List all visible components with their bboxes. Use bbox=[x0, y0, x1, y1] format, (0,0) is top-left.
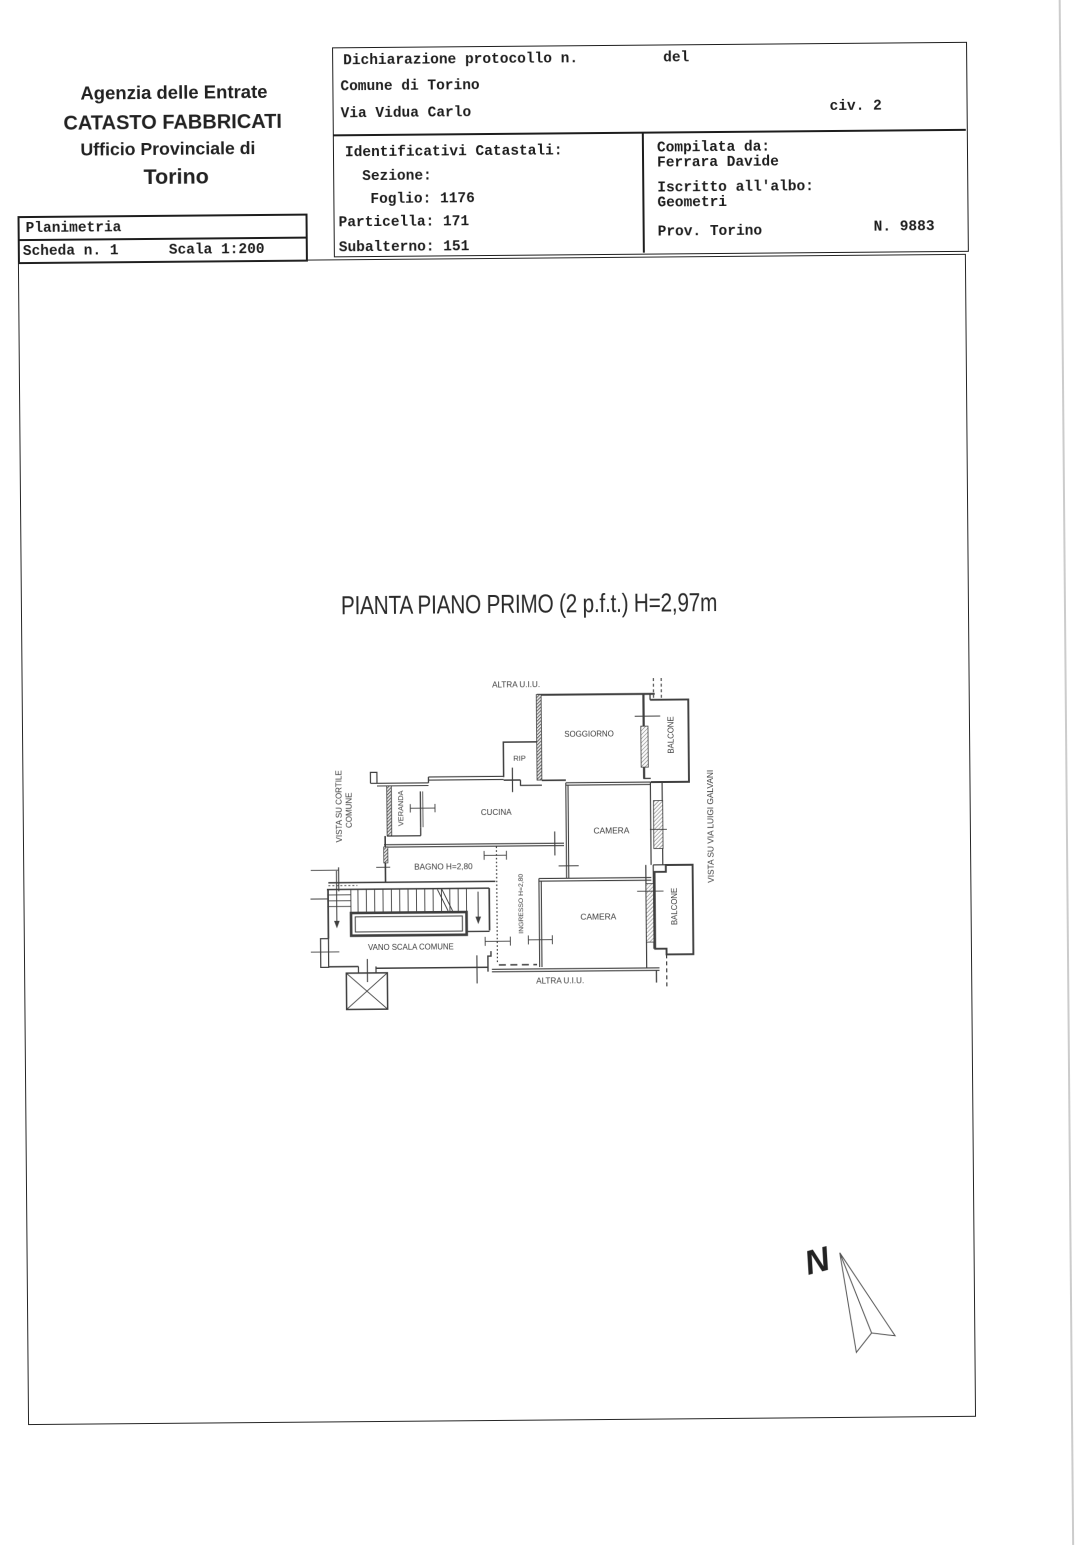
svg-text:SOGGIORNO: SOGGIORNO bbox=[564, 729, 614, 738]
svg-text:VISTA SU VIA LUIGI GALVANI: VISTA SU VIA LUIGI GALVANI bbox=[705, 770, 716, 883]
svg-text:N: N bbox=[801, 1239, 836, 1282]
svg-text:CUCINA: CUCINA bbox=[481, 808, 512, 817]
svg-text:VISTA SU CORTILE: VISTA SU CORTILE bbox=[334, 770, 344, 842]
svg-text:RIP: RIP bbox=[513, 754, 526, 763]
svg-text:CAMERA: CAMERA bbox=[580, 911, 616, 921]
svg-text:BAGNO H=2,80: BAGNO H=2,80 bbox=[414, 862, 473, 872]
svg-text:INGRESSO H=2,80: INGRESSO H=2,80 bbox=[518, 874, 526, 934]
svg-text:VERANDA: VERANDA bbox=[396, 790, 405, 826]
svg-text:CAMERA: CAMERA bbox=[593, 825, 629, 835]
svg-text:BALCONE: BALCONE bbox=[670, 888, 679, 925]
svg-text:COMUNE: COMUNE bbox=[344, 792, 353, 828]
svg-text:ALTRA U.I.U.: ALTRA U.I.U. bbox=[492, 680, 540, 689]
svg-text:VANO SCALA COMUNE: VANO SCALA COMUNE bbox=[368, 942, 454, 952]
svg-text:BALCONE: BALCONE bbox=[666, 716, 675, 753]
svg-text:ALTRA U.I.U.: ALTRA U.I.U. bbox=[536, 976, 584, 985]
